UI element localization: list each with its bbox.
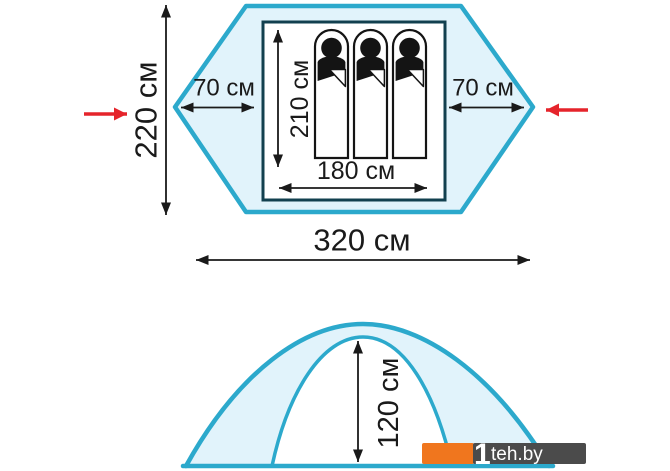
- watermark-logo-mark: 1: [474, 438, 491, 471]
- sleeper-head-icon: [321, 38, 342, 59]
- watermark-orange-block: [422, 443, 474, 464]
- sleeping-bag: [354, 30, 387, 158]
- height-label: 120 см: [373, 358, 405, 449]
- vestibule-left-label: 70 см: [193, 75, 255, 102]
- depth-label: 220 см: [129, 61, 164, 158]
- sleeping-bag: [315, 30, 348, 158]
- sleeper-head-icon: [360, 38, 381, 59]
- inner-length-label: 210 см: [286, 60, 314, 138]
- sleeping-bag: [393, 30, 426, 158]
- vestibule-right-label: 70 см: [452, 75, 514, 102]
- tent-dimensions-screenshot: 220 см 70 см 70 см 210 см 180 см 320 см …: [0, 0, 670, 471]
- inner-width-label: 180 см: [317, 157, 395, 185]
- tent-dimensions-diagram: 220 см 70 см 70 см 210 см 180 см 320 см …: [0, 0, 670, 471]
- total-width-label: 320 см: [313, 223, 410, 258]
- tent-top-view: 220 см 70 см 70 см 210 см 180 см 320 см: [84, 5, 588, 260]
- sleeper-head-icon: [399, 38, 420, 59]
- watermark-text: teh.by: [491, 444, 543, 465]
